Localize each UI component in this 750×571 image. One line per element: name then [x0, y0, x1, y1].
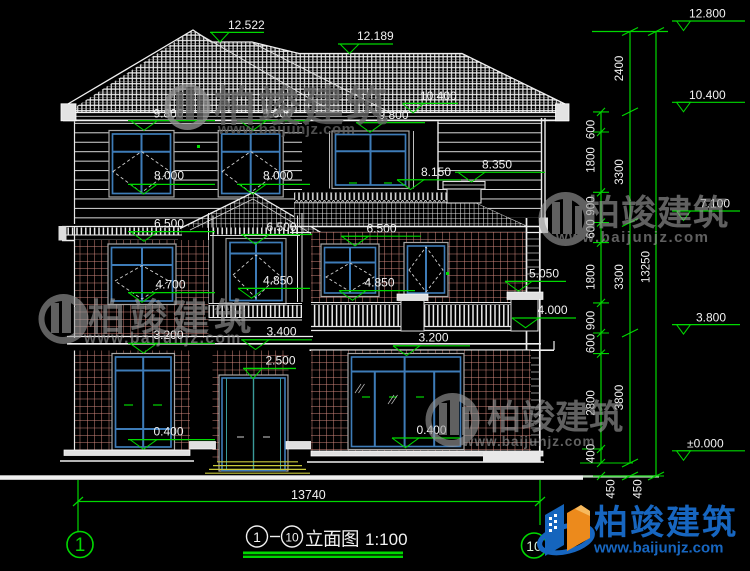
svg-text:3.800: 3.800 — [696, 311, 726, 325]
svg-text:www.baijunjz.com: www.baijunjz.com — [555, 229, 709, 246]
svg-text:www.baijunjz.com: www.baijunjz.com — [593, 540, 723, 557]
svg-text:8.150: 8.150 — [421, 165, 451, 179]
svg-text:4.000: 4.000 — [538, 303, 568, 317]
svg-text:8.000: 8.000 — [154, 169, 184, 183]
svg-text:3300: 3300 — [614, 159, 626, 185]
svg-text:450: 450 — [606, 479, 618, 498]
svg-text:1:100: 1:100 — [365, 530, 408, 549]
svg-text:www.baijunjz.com: www.baijunjz.com — [83, 330, 242, 347]
svg-text:10.400: 10.400 — [689, 88, 726, 102]
svg-text:4.850: 4.850 — [263, 274, 293, 288]
svg-text:柏竣建筑: 柏竣建筑 — [594, 503, 738, 542]
svg-text:600: 600 — [586, 120, 598, 139]
svg-text:www.baijunjz.com: www.baijunjz.com — [462, 434, 596, 449]
svg-text:12.800: 12.800 — [689, 7, 726, 21]
svg-text:2.500: 2.500 — [266, 354, 296, 368]
svg-text:2400: 2400 — [614, 56, 626, 82]
svg-text:900: 900 — [586, 311, 598, 330]
svg-text:4.850: 4.850 — [365, 276, 395, 290]
svg-text:13250: 13250 — [641, 251, 653, 283]
svg-text:0.400: 0.400 — [154, 425, 184, 439]
svg-text:12.522: 12.522 — [228, 18, 265, 32]
svg-text:1: 1 — [253, 529, 261, 545]
svg-text:4.700: 4.700 — [156, 278, 186, 292]
svg-text:450: 450 — [633, 479, 645, 498]
svg-text:12.189: 12.189 — [357, 29, 394, 43]
svg-text:1800: 1800 — [586, 147, 598, 173]
svg-text:柏竣建筑: 柏竣建筑 — [585, 193, 729, 233]
svg-text:6.500: 6.500 — [367, 222, 397, 236]
svg-text:600: 600 — [586, 334, 598, 353]
svg-text:www.baijunjz.com: www.baijunjz.com — [217, 121, 355, 138]
svg-text:1800: 1800 — [586, 264, 598, 290]
svg-text:3.400: 3.400 — [267, 325, 297, 339]
svg-text:13740: 13740 — [291, 488, 326, 502]
svg-text:柏竣建筑: 柏竣建筑 — [487, 398, 623, 437]
svg-text:3300: 3300 — [614, 264, 626, 290]
svg-text:1: 1 — [75, 535, 86, 556]
svg-text:8.000: 8.000 — [263, 169, 293, 183]
svg-text:6.500: 6.500 — [154, 217, 184, 231]
svg-text:立面图: 立面图 — [305, 529, 359, 550]
svg-text:±0.000: ±0.000 — [687, 437, 724, 451]
svg-text:10.400: 10.400 — [420, 89, 457, 103]
svg-text:6.500: 6.500 — [267, 220, 297, 234]
svg-text:3.200: 3.200 — [419, 331, 449, 345]
svg-text:10: 10 — [285, 531, 299, 545]
svg-text:5.050: 5.050 — [529, 267, 559, 281]
svg-text:8.350: 8.350 — [482, 158, 512, 172]
